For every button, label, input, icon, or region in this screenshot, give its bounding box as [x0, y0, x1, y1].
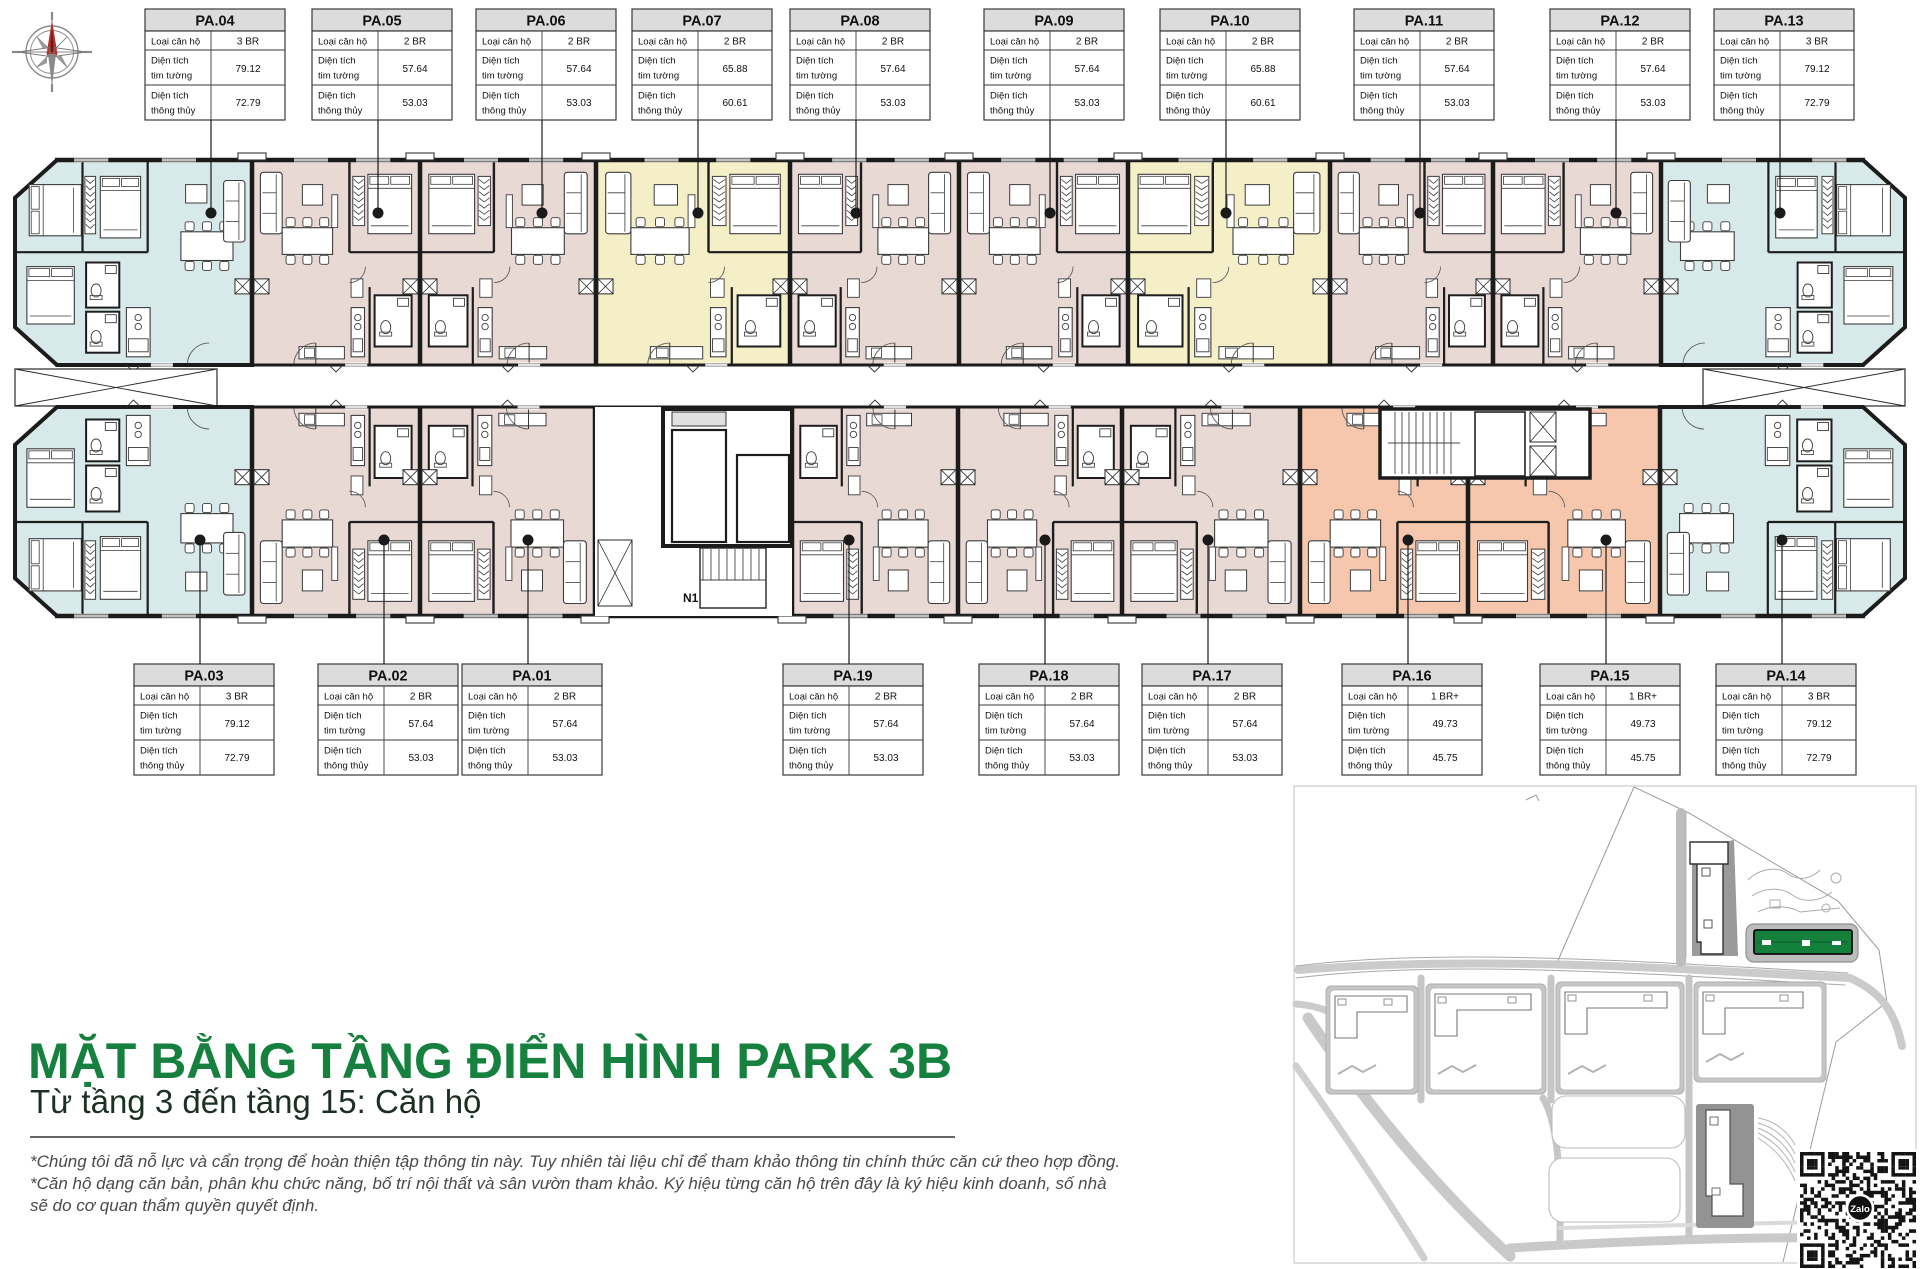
svg-text:57.64: 57.64 — [552, 719, 577, 730]
svg-text:tim tường: tim tường — [1720, 71, 1761, 82]
svg-text:Loại căn hộ: Loại căn hộ — [796, 37, 845, 48]
svg-text:thông thủy: thông thủy — [318, 106, 363, 117]
svg-text:Loại căn hộ: Loại căn hộ — [140, 692, 189, 703]
svg-text:thông thủy: thông thủy — [1720, 106, 1765, 117]
svg-text:79.12: 79.12 — [224, 719, 249, 730]
svg-text:2 BR: 2 BR — [410, 692, 432, 703]
svg-text:PA.17: PA.17 — [1192, 669, 1231, 685]
svg-text:Diện tích: Diện tích — [1166, 91, 1204, 102]
svg-text:tim tường: tim tường — [638, 71, 679, 82]
svg-text:Diện tích: Diện tích — [985, 711, 1023, 722]
svg-text:Diện tích: Diện tích — [1720, 91, 1758, 102]
svg-text:Diện tích: Diện tích — [1546, 711, 1584, 722]
svg-text:57.64: 57.64 — [1444, 64, 1469, 75]
svg-text:thông thủy: thông thủy — [324, 761, 369, 772]
svg-text:79.12: 79.12 — [1804, 64, 1829, 75]
svg-text:Diện tích: Diện tích — [1348, 746, 1386, 757]
svg-text:79.12: 79.12 — [235, 64, 260, 75]
svg-text:tim tường: tim tường — [140, 726, 181, 737]
svg-text:thông thủy: thông thủy — [796, 106, 841, 117]
svg-text:PA.18: PA.18 — [1029, 669, 1068, 685]
svg-text:tim tường: tim tường — [985, 726, 1026, 737]
svg-text:tim tường: tim tường — [151, 71, 192, 82]
svg-text:PA.12: PA.12 — [1600, 14, 1639, 30]
svg-text:tim tường: tim tường — [1348, 726, 1389, 737]
svg-text:tim tường: tim tường — [468, 726, 509, 737]
svg-text:sẽ do cơ quan thẩm quyền quyết: sẽ do cơ quan thẩm quyền quyết định. — [30, 1196, 319, 1215]
svg-text:PA.01: PA.01 — [512, 669, 551, 685]
svg-text:1 BR+: 1 BR+ — [1431, 692, 1459, 703]
svg-text:Diện tích: Diện tích — [482, 91, 520, 102]
svg-text:Loại căn hộ: Loại căn hộ — [1348, 692, 1397, 703]
svg-text:Loại căn hộ: Loại căn hộ — [1166, 37, 1215, 48]
svg-text:3 BR: 3 BR — [1806, 37, 1828, 48]
svg-text:Loại căn hộ: Loại căn hộ — [482, 37, 531, 48]
svg-text:Loại căn hộ: Loại căn hộ — [468, 692, 517, 703]
svg-text:tim tường: tim tường — [1556, 71, 1597, 82]
svg-text:57.64: 57.64 — [566, 64, 591, 75]
svg-text:Zalo: Zalo — [1850, 1204, 1870, 1215]
svg-text:57.64: 57.64 — [873, 719, 898, 730]
svg-text:3 BR: 3 BR — [1808, 692, 1830, 703]
svg-text:65.88: 65.88 — [1250, 64, 1275, 75]
svg-text:2 BR: 2 BR — [1071, 692, 1093, 703]
svg-text:thông thủy: thông thủy — [1348, 761, 1393, 772]
svg-text:72.79: 72.79 — [1804, 98, 1829, 109]
svg-text:Từ tầng 3 đến tầng 15: Căn hộ: Từ tầng 3 đến tầng 15: Căn hộ — [30, 1083, 481, 1120]
svg-text:57.64: 57.64 — [1069, 719, 1094, 730]
svg-text:72.79: 72.79 — [235, 98, 260, 109]
svg-text:thông thủy: thông thủy — [1546, 761, 1591, 772]
svg-text:*Căn hộ dạng căn bản, phân khu: *Căn hộ dạng căn bản, phân khu chức năng… — [30, 1174, 1107, 1193]
svg-text:3 BR: 3 BR — [237, 37, 259, 48]
svg-text:Diện tích: Diện tích — [1166, 56, 1204, 67]
svg-text:Diện tích: Diện tích — [985, 746, 1023, 757]
svg-text:Diện tích: Diện tích — [1148, 711, 1186, 722]
svg-text:PA.15: PA.15 — [1590, 669, 1629, 685]
svg-text:Diện tích: Diện tích — [468, 711, 506, 722]
svg-text:2 BR: 2 BR — [724, 37, 746, 48]
svg-text:PA.07: PA.07 — [682, 14, 721, 30]
svg-text:thông thủy: thông thủy — [990, 106, 1035, 117]
svg-text:2 BR: 2 BR — [1642, 37, 1664, 48]
svg-text:57.64: 57.64 — [408, 719, 433, 730]
svg-text:2 BR: 2 BR — [1252, 37, 1274, 48]
svg-text:Diện tích: Diện tích — [1360, 56, 1398, 67]
svg-text:thông thủy: thông thủy — [482, 106, 527, 117]
svg-text:2 BR: 2 BR — [875, 692, 897, 703]
svg-text:Diện tích: Diện tích — [638, 56, 676, 67]
svg-text:57.64: 57.64 — [1640, 64, 1665, 75]
svg-text:Loại căn hộ: Loại căn hộ — [789, 692, 838, 703]
svg-text:tim tường: tim tường — [482, 71, 523, 82]
svg-text:3 BR: 3 BR — [226, 692, 248, 703]
svg-text:tim tường: tim tường — [1360, 71, 1401, 82]
svg-text:*Chúng tôi đã nỗ lực và cẩn tr: *Chúng tôi đã nỗ lực và cẩn trọng để hoà… — [30, 1152, 1120, 1171]
svg-text:60.61: 60.61 — [722, 98, 747, 109]
svg-text:tim tường: tim tường — [318, 71, 359, 82]
svg-text:57.64: 57.64 — [1232, 719, 1257, 730]
svg-text:Diện tích: Diện tích — [789, 746, 827, 757]
svg-text:tim tường: tim tường — [990, 71, 1031, 82]
svg-text:Diện tích: Diện tích — [1722, 711, 1760, 722]
svg-text:Loại căn hộ: Loại căn hộ — [1148, 692, 1197, 703]
svg-text:Diện tích: Diện tích — [1720, 56, 1758, 67]
svg-text:Diện tích: Diện tích — [468, 746, 506, 757]
svg-text:Diện tích: Diện tích — [990, 56, 1028, 67]
svg-text:Diện tích: Diện tích — [324, 711, 362, 722]
svg-text:PA.09: PA.09 — [1034, 14, 1073, 30]
svg-text:Diện tích: Diện tích — [990, 91, 1028, 102]
svg-text:Loại căn hộ: Loại căn hộ — [985, 692, 1034, 703]
svg-text:Diện tích: Diện tích — [318, 56, 356, 67]
svg-text:57.64: 57.64 — [880, 64, 905, 75]
svg-text:Loại căn hộ: Loại căn hộ — [1722, 692, 1771, 703]
svg-text:Diện tích: Diện tích — [324, 746, 362, 757]
svg-text:Diện tích: Diện tích — [318, 91, 356, 102]
svg-text:N1: N1 — [683, 591, 699, 605]
svg-text:thông thủy: thông thủy — [789, 761, 834, 772]
svg-text:Diện tích: Diện tích — [1722, 746, 1760, 757]
svg-text:Diện tích: Diện tích — [796, 91, 834, 102]
svg-text:Diện tích: Diện tích — [1360, 91, 1398, 102]
svg-text:53.03: 53.03 — [1640, 98, 1665, 109]
svg-text:53.03: 53.03 — [408, 753, 433, 764]
svg-text:Diện tích: Diện tích — [789, 711, 827, 722]
svg-text:49.73: 49.73 — [1630, 719, 1655, 730]
svg-text:tim tường: tim tường — [1166, 71, 1207, 82]
svg-text:53.03: 53.03 — [566, 98, 591, 109]
svg-text:53.03: 53.03 — [1232, 753, 1257, 764]
svg-text:53.03: 53.03 — [1444, 98, 1469, 109]
svg-text:45.75: 45.75 — [1630, 753, 1655, 764]
svg-text:tim tường: tim tường — [324, 726, 365, 737]
svg-text:Diện tích: Diện tích — [151, 91, 189, 102]
svg-text:Diện tích: Diện tích — [638, 91, 676, 102]
svg-text:tim tường: tim tường — [1148, 726, 1189, 737]
svg-text:Diện tích: Diện tích — [482, 56, 520, 67]
svg-text:Diện tích: Diện tích — [1556, 91, 1594, 102]
svg-text:Loại căn hộ: Loại căn hộ — [1360, 37, 1409, 48]
svg-text:Loại căn hộ: Loại căn hộ — [324, 692, 373, 703]
svg-text:2 BR: 2 BR — [1446, 37, 1468, 48]
svg-text:MẶT BẰNG TẦNG ĐIỂN HÌNH PARK 3: MẶT BẰNG TẦNG ĐIỂN HÌNH PARK 3B — [28, 1033, 952, 1089]
svg-text:2 BR: 2 BR — [554, 692, 576, 703]
svg-text:Diện tích: Diện tích — [1546, 746, 1584, 757]
svg-text:PA.08: PA.08 — [840, 14, 879, 30]
svg-text:60.61: 60.61 — [1250, 98, 1275, 109]
svg-text:PA.13: PA.13 — [1764, 14, 1803, 30]
svg-text:79.12: 79.12 — [1806, 719, 1831, 730]
svg-text:thông thủy: thông thủy — [1360, 106, 1405, 117]
svg-text:57.64: 57.64 — [402, 64, 427, 75]
svg-text:72.79: 72.79 — [1806, 753, 1831, 764]
svg-text:Loại căn hộ: Loại căn hộ — [638, 37, 687, 48]
svg-text:53.03: 53.03 — [552, 753, 577, 764]
svg-text:Diện tích: Diện tích — [140, 746, 178, 757]
svg-text:Loại căn hộ: Loại căn hộ — [318, 37, 367, 48]
svg-text:2 BR: 2 BR — [1234, 692, 1256, 703]
svg-text:PA.14: PA.14 — [1766, 669, 1805, 685]
svg-text:PA.10: PA.10 — [1210, 14, 1249, 30]
svg-text:tim tường: tim tường — [789, 726, 830, 737]
svg-text:Loại căn hộ: Loại căn hộ — [1720, 37, 1769, 48]
svg-text:thông thủy: thông thủy — [151, 106, 196, 117]
svg-text:53.03: 53.03 — [880, 98, 905, 109]
svg-text:Loại căn hộ: Loại căn hộ — [990, 37, 1039, 48]
svg-text:2 BR: 2 BR — [1076, 37, 1098, 48]
svg-text:Loại căn hộ: Loại căn hộ — [1556, 37, 1605, 48]
svg-text:53.03: 53.03 — [1069, 753, 1094, 764]
svg-text:thông thủy: thông thủy — [1556, 106, 1601, 117]
svg-text:PA.16: PA.16 — [1392, 669, 1431, 685]
svg-text:72.79: 72.79 — [224, 753, 249, 764]
svg-text:Diện tích: Diện tích — [1148, 746, 1186, 757]
svg-text:57.64: 57.64 — [1074, 64, 1099, 75]
svg-text:53.03: 53.03 — [402, 98, 427, 109]
svg-text:65.88: 65.88 — [722, 64, 747, 75]
svg-text:PA.03: PA.03 — [184, 669, 223, 685]
svg-text:thông thủy: thông thủy — [985, 761, 1030, 772]
svg-text:Diện tích: Diện tích — [1348, 711, 1386, 722]
svg-text:2 BR: 2 BR — [404, 37, 426, 48]
svg-text:PA.06: PA.06 — [526, 14, 565, 30]
svg-text:PA.11: PA.11 — [1405, 14, 1443, 30]
svg-text:Diện tích: Diện tích — [1556, 56, 1594, 67]
svg-text:53.03: 53.03 — [1074, 98, 1099, 109]
svg-text:tim tường: tim tường — [796, 71, 837, 82]
svg-text:PA.04: PA.04 — [195, 14, 234, 30]
svg-text:thông thủy: thông thủy — [1166, 106, 1211, 117]
svg-text:Diện tích: Diện tích — [151, 56, 189, 67]
svg-text:Loại căn hộ: Loại căn hộ — [1546, 692, 1595, 703]
svg-text:2 BR: 2 BR — [568, 37, 590, 48]
svg-text:1 BR+: 1 BR+ — [1629, 692, 1657, 703]
svg-text:thông thủy: thông thủy — [638, 106, 683, 117]
svg-text:45.75: 45.75 — [1432, 753, 1457, 764]
svg-text:thông thủy: thông thủy — [1722, 761, 1767, 772]
svg-text:tim tường: tim tường — [1722, 726, 1763, 737]
svg-text:53.03: 53.03 — [873, 753, 898, 764]
svg-text:Diện tích: Diện tích — [796, 56, 834, 67]
svg-text:2 BR: 2 BR — [882, 37, 904, 48]
svg-text:Loại căn hộ: Loại căn hộ — [151, 37, 200, 48]
svg-text:PA.02: PA.02 — [368, 669, 407, 685]
svg-text:49.73: 49.73 — [1432, 719, 1457, 730]
svg-text:thông thủy: thông thủy — [1148, 761, 1193, 772]
svg-text:Diện tích: Diện tích — [140, 711, 178, 722]
svg-text:tim tường: tim tường — [1546, 726, 1587, 737]
svg-text:PA.19: PA.19 — [833, 669, 872, 685]
svg-text:thông thủy: thông thủy — [468, 761, 513, 772]
svg-text:PA.05: PA.05 — [362, 14, 401, 30]
svg-text:thông thủy: thông thủy — [140, 761, 185, 772]
